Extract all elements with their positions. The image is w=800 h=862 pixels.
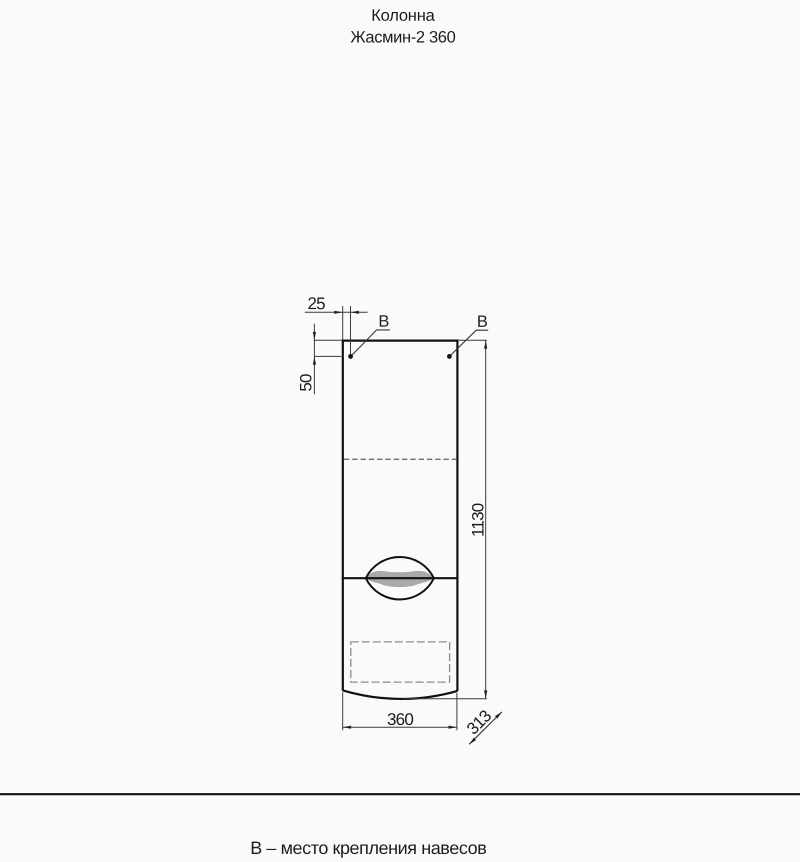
svg-text:В: В	[477, 313, 488, 331]
svg-text:В – место крепления навесов: В – место крепления навесов	[250, 838, 486, 858]
svg-text:1130: 1130	[468, 503, 487, 537]
svg-text:В: В	[378, 313, 389, 331]
svg-text:360: 360	[387, 710, 413, 729]
svg-text:50: 50	[297, 374, 316, 392]
svg-text:Жасмин-2 360: Жасмин-2 360	[350, 28, 455, 46]
svg-text:25: 25	[308, 294, 326, 313]
svg-text:Колонна: Колонна	[371, 7, 435, 25]
